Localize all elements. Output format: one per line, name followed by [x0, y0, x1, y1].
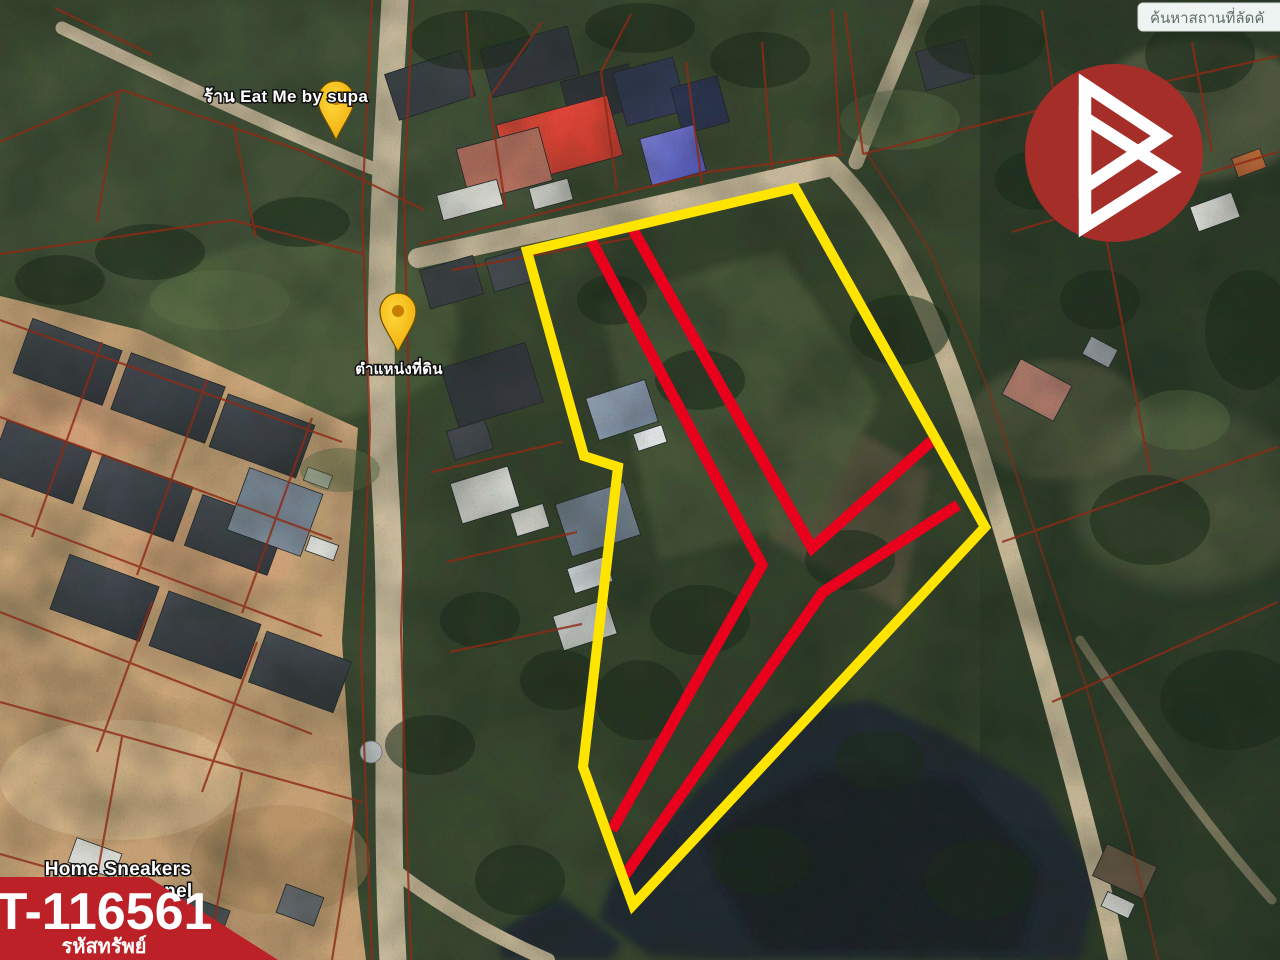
- search-box[interactable]: ค้นหาสถานที่ลัดคั: [1138, 3, 1280, 31]
- property-code: T-116561: [0, 883, 212, 941]
- satellite-map[interactable]: ร้าน Eat Me by supa ตำแหน่งที่ดิน Home S…: [0, 0, 1280, 960]
- search-box-text: ค้นหาสถานที่ลัดคั: [1150, 7, 1264, 27]
- property-code-label: รหัสทรัพย์: [62, 935, 147, 958]
- listing-image: ร้าน Eat Me by supa ตำแหน่งที่ดิน Home S…: [0, 0, 1280, 960]
- poi-label-land-position[interactable]: ตำแหน่งที่ดิน: [355, 358, 443, 378]
- poi-label-shop-line1[interactable]: Home Sneakers: [45, 859, 191, 880]
- logo-circle: [1025, 64, 1203, 242]
- brand-logo: [1025, 64, 1203, 242]
- poi-label-restaurant[interactable]: ร้าน Eat Me by supa: [204, 87, 368, 106]
- pin-dot: [392, 305, 404, 317]
